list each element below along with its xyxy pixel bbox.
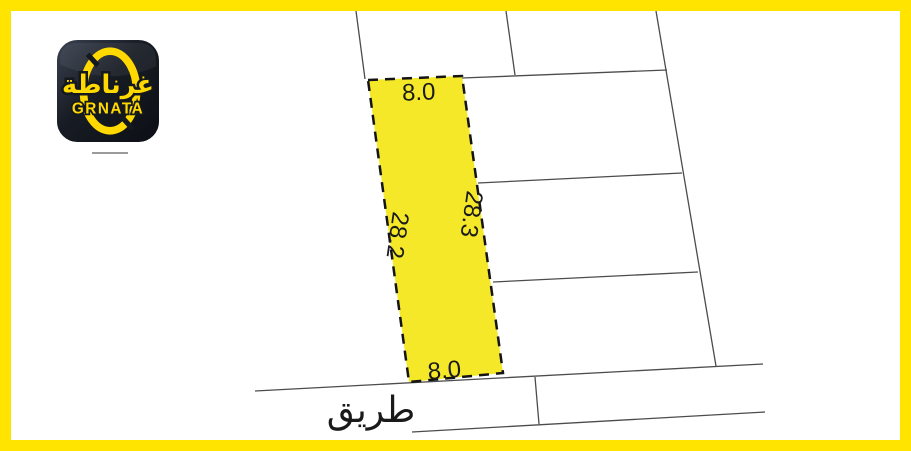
road-edge-bottom-line bbox=[412, 412, 765, 432]
boundary-line-row2-row3 bbox=[493, 272, 698, 282]
boundary-line-top-left bbox=[356, 11, 365, 79]
road-edge-top-line bbox=[255, 364, 763, 391]
road-divider-line bbox=[535, 377, 539, 424]
boundary-line-row1-row2 bbox=[478, 173, 682, 183]
boundary-line-top-middle bbox=[506, 11, 515, 75]
logo-underline bbox=[92, 152, 128, 154]
dimension-top: 8.0 bbox=[401, 78, 436, 106]
grnata-logo: غرناطة GRNATA bbox=[57, 40, 159, 142]
road-label: طريق bbox=[327, 390, 416, 431]
dimension-bottom: 8.0 bbox=[427, 356, 463, 386]
plot-map-page: { "brand": { "arabic": "غرناطة", "latin"… bbox=[0, 0, 911, 451]
boundary-line-row1-top bbox=[462, 70, 667, 78]
logo-arabic-text: غرناطة bbox=[62, 70, 154, 100]
logo-latin-text: GRNATA bbox=[72, 100, 144, 117]
boundary-line-right bbox=[656, 11, 716, 366]
